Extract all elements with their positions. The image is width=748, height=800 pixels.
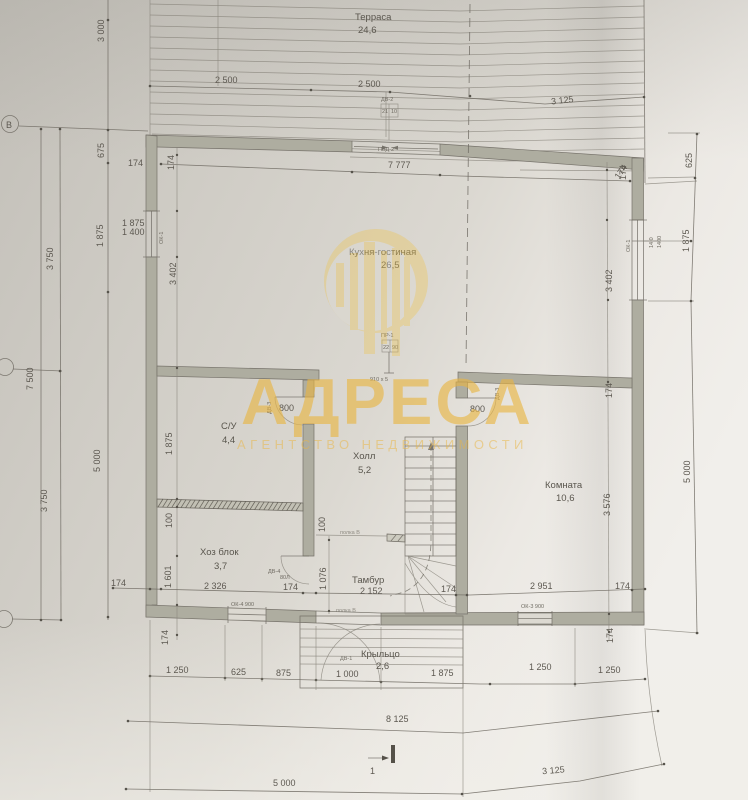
svg-text:2,6: 2,6: [376, 661, 389, 672]
svg-text:ДВ-1: ДВ-1: [340, 656, 352, 662]
svg-text:10,6: 10,6: [556, 493, 575, 504]
svg-text:875: 875: [276, 668, 291, 678]
svg-text:1 250: 1 250: [166, 665, 189, 675]
svg-text:100: 100: [317, 517, 327, 532]
svg-text:ОК-1: ОК-1: [159, 232, 165, 244]
svg-text:В: В: [6, 120, 12, 130]
svg-text:80Л: 80Л: [280, 575, 290, 581]
svg-text:1 875: 1 875: [681, 229, 691, 252]
svg-text:675: 675: [96, 143, 106, 158]
svg-text:24,6: 24,6: [358, 25, 377, 36]
svg-text:1 875: 1 875: [95, 224, 105, 247]
svg-text:Тамбур: Тамбур: [352, 575, 384, 586]
svg-text:174: 174: [618, 165, 628, 180]
svg-text:174: 174: [441, 584, 456, 594]
svg-text:1 601: 1 601: [163, 565, 173, 588]
svg-text:3,7: 3,7: [214, 561, 227, 572]
svg-text:22: 22: [383, 345, 389, 351]
svg-text:4,4: 4,4: [222, 435, 235, 446]
svg-text:174: 174: [283, 582, 298, 592]
svg-text:5 000: 5 000: [682, 460, 692, 483]
svg-text:3 000: 3 000: [96, 19, 106, 42]
svg-text:3 576: 3 576: [602, 493, 612, 516]
svg-text:Холл: Холл: [353, 451, 375, 462]
svg-text:ОК-3 900: ОК-3 900: [521, 604, 544, 610]
svg-text:Терраса: Терраса: [355, 12, 392, 23]
svg-text:3 402: 3 402: [604, 269, 614, 292]
svg-text:174: 174: [615, 581, 630, 591]
svg-text:5,2: 5,2: [358, 465, 371, 476]
svg-text:С/У: С/У: [221, 421, 238, 432]
svg-text:3 750: 3 750: [45, 247, 55, 270]
svg-text:3 750: 3 750: [39, 489, 49, 512]
svg-text:Комната: Комната: [545, 480, 583, 491]
svg-text:5 000: 5 000: [273, 778, 296, 788]
svg-text:АДРЕСА: АДРЕСА: [241, 365, 534, 438]
svg-text:174: 174: [160, 630, 170, 645]
svg-text:АГЕНТСТВО НЕДВИЖИМОСТИ: АГЕНТСТВО НЕДВИЖИМОСТИ: [237, 437, 528, 452]
svg-text:2 951: 2 951: [530, 581, 553, 591]
svg-text:1 076: 1 076: [318, 567, 328, 590]
svg-text:полка В: полка В: [336, 608, 356, 614]
svg-text:ДВ-4: ДВ-4: [268, 569, 280, 575]
svg-text:8 125: 8 125: [386, 714, 409, 724]
svg-text:1 875: 1 875: [431, 668, 454, 678]
svg-text:625: 625: [231, 667, 246, 677]
svg-text:3 125: 3 125: [542, 764, 565, 776]
svg-text:174: 174: [605, 628, 615, 643]
svg-text:14 0: 14 0: [649, 237, 655, 248]
svg-text:174: 174: [166, 155, 176, 170]
svg-text:174: 174: [604, 383, 614, 398]
svg-text:ОК-1: ОК-1: [626, 240, 632, 252]
svg-text:2 500: 2 500: [358, 79, 381, 89]
svg-text:1 875: 1 875: [164, 432, 174, 455]
svg-text:Хоз блок: Хоз блок: [200, 547, 239, 558]
svg-text:1 000: 1 000: [336, 669, 359, 679]
svg-text:2 152: 2 152: [360, 586, 383, 596]
svg-text:1 250: 1 250: [529, 662, 552, 672]
svg-text:7 777: 7 777: [388, 160, 411, 170]
svg-text:2 326: 2 326: [204, 581, 227, 591]
svg-text:1 250: 1 250: [598, 665, 621, 675]
svg-text:ОК-4 900: ОК-4 900: [231, 602, 254, 608]
svg-text:1: 1: [370, 766, 375, 776]
svg-text:10: 10: [391, 109, 397, 115]
svg-text:174: 174: [128, 158, 143, 168]
svg-text:ДВ-2: ДВ-2: [381, 97, 393, 103]
svg-text:174: 174: [111, 578, 126, 588]
svg-text:21: 21: [382, 109, 388, 115]
svg-text:ПВД-2: ПВД-2: [378, 147, 394, 153]
svg-text:100: 100: [164, 513, 174, 528]
svg-text:5 000: 5 000: [92, 449, 102, 472]
svg-text:3 402: 3 402: [168, 262, 178, 285]
svg-text:2 500: 2 500: [215, 75, 238, 85]
svg-text:7 500: 7 500: [25, 367, 35, 390]
svg-text:полка В: полка В: [340, 530, 360, 536]
svg-text:1 400: 1 400: [122, 227, 145, 237]
svg-text:Крыльцо: Крыльцо: [361, 649, 400, 660]
svg-text:625: 625: [684, 153, 694, 168]
svg-text:1400: 1400: [657, 236, 663, 248]
